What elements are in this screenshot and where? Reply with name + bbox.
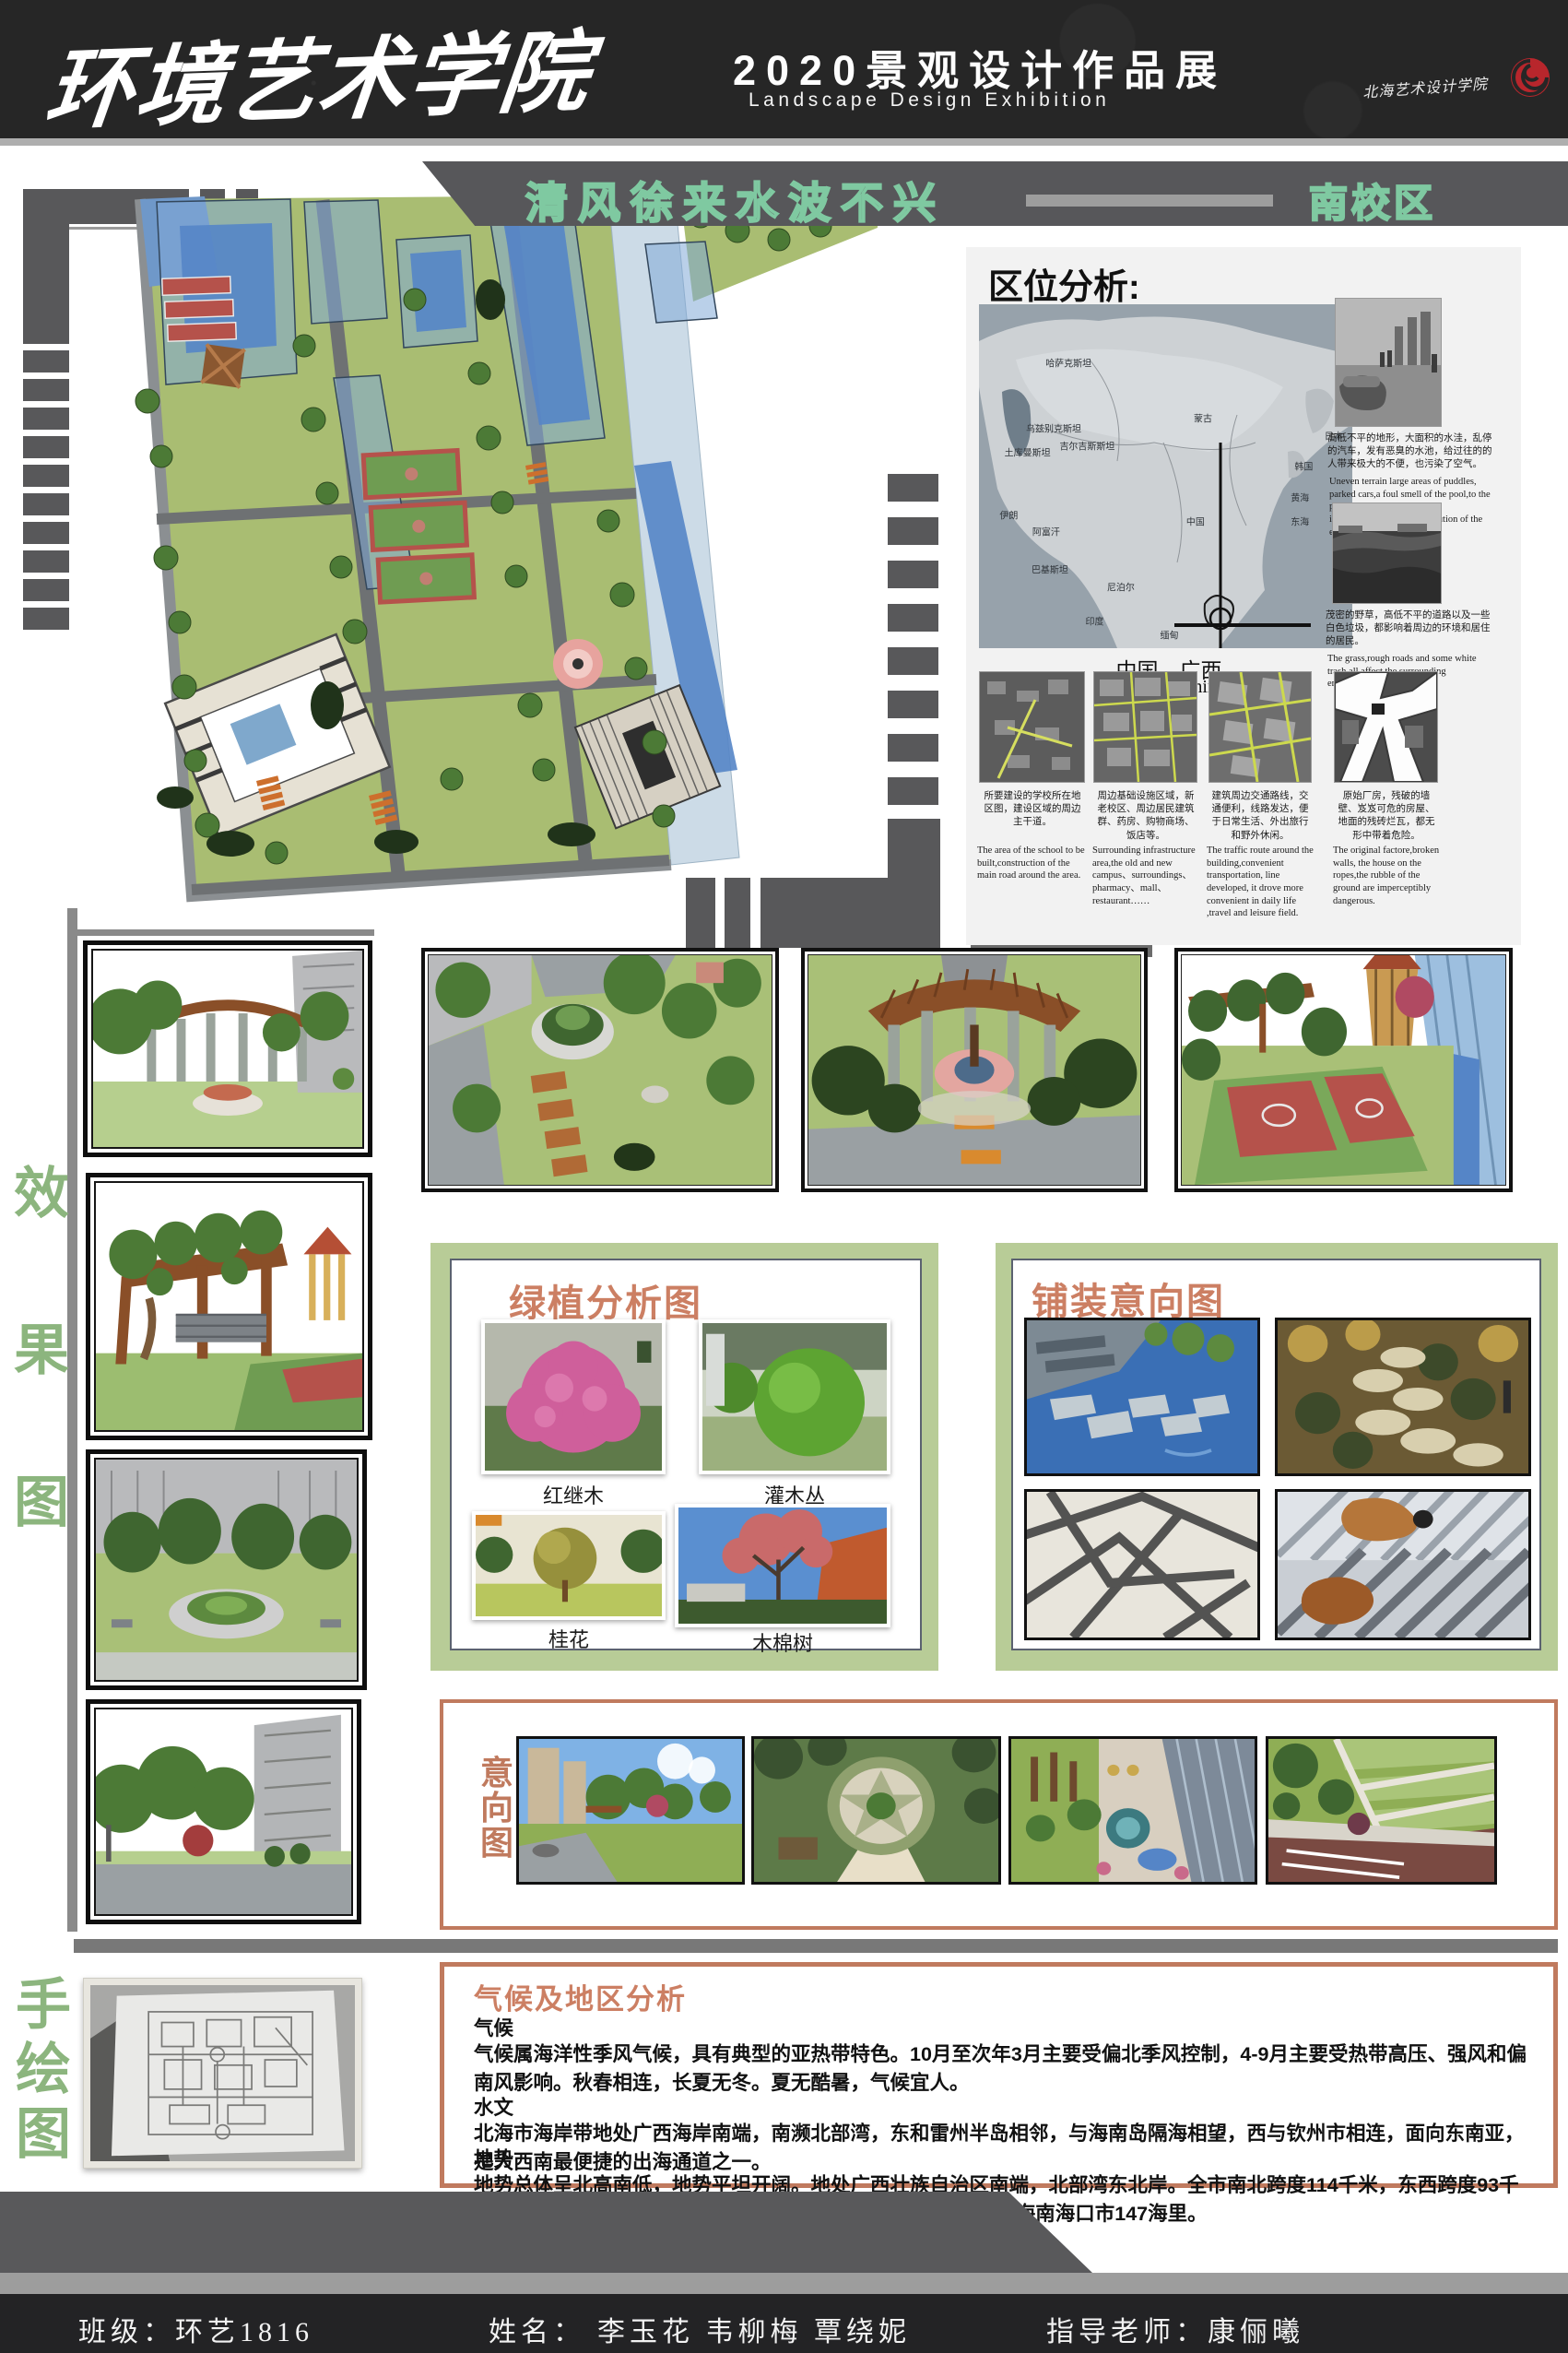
footer-name-label: 姓名： xyxy=(489,2309,585,2349)
intention-label-char: 向 xyxy=(477,1791,517,1825)
aerial-caption-en: The traffic route around the building,co… xyxy=(1207,845,1315,920)
plant-name: 桂花 xyxy=(472,1624,666,1653)
map-label: 巴基斯坦 xyxy=(1032,562,1068,576)
left-top-line xyxy=(77,929,374,936)
effect-label-char: 效 xyxy=(9,1166,74,1222)
aerial-photo-1 xyxy=(979,671,1085,783)
map-label: 中国 xyxy=(1186,514,1205,527)
intention-label-char: 意 xyxy=(477,1756,517,1790)
slogan-banner: 清风徐来水波不兴 南校区 xyxy=(422,161,1568,226)
deco-dash xyxy=(23,379,69,401)
effect-label-char: 果 xyxy=(9,1323,74,1378)
footer-names: 李玉花 韦柳梅 覃绕妮 xyxy=(597,2309,911,2349)
map-label: 韩国 xyxy=(1294,459,1313,473)
map-label: 尼泊尔 xyxy=(1107,579,1135,593)
map-label: 东海 xyxy=(1291,514,1309,527)
render-arc-pergola xyxy=(83,940,372,1157)
aerial-photo-3 xyxy=(1208,671,1312,783)
intention-photo-terraces xyxy=(1266,1736,1497,1885)
climate-paragraph: 水文 xyxy=(474,2094,1534,2122)
deco-dash xyxy=(23,522,69,544)
map-label: 黄海 xyxy=(1291,490,1309,503)
plant-name: 红继木 xyxy=(481,1480,666,1509)
aerial-caption-en: Surrounding infrastructure area,the old … xyxy=(1092,845,1201,907)
deco-dash xyxy=(23,408,69,430)
render-vine-pergola xyxy=(86,1173,372,1440)
map-label: 缅甸 xyxy=(1161,628,1179,642)
asia-map: 哈萨克斯坦 乌兹别克斯坦 土库曼斯坦 吉尔吉斯斯坦 蒙古 伊朗 阿富汗 中国 巴… xyxy=(979,304,1352,648)
deco-dash xyxy=(23,550,69,573)
plant-photo-shrub xyxy=(699,1319,890,1474)
site-photo-street xyxy=(1335,298,1442,427)
exhibition-subtitle: Landscape Design Exhibition xyxy=(749,89,1110,112)
map-label: 乌兹别克斯坦 xyxy=(1026,421,1081,435)
render-round-pergola xyxy=(801,948,1148,1192)
campus-label: 南校区 xyxy=(1309,172,1436,229)
climate-paragraph: 地势 xyxy=(474,2146,1534,2174)
academy-logo-text: 北海艺术设计学院 xyxy=(1362,71,1488,101)
plant-photo-kapok xyxy=(675,1504,890,1627)
intention-panel: 意 向 图 xyxy=(440,1699,1558,1930)
intention-label-char: 图 xyxy=(477,1827,517,1860)
map-label: 土库曼斯坦 xyxy=(1005,445,1051,459)
map-label: 哈萨克斯坦 xyxy=(1045,356,1091,370)
map-label: 蒙古 xyxy=(1194,411,1212,425)
aerial-photo-2 xyxy=(1093,671,1197,783)
left-vertical-bar xyxy=(67,908,77,1932)
banner-dash xyxy=(1026,195,1273,207)
footer-bar: 班级：环艺1816 姓名： 李玉花 韦柳梅 覃绕妮 指导老师：康俪曦 xyxy=(0,2294,1568,2353)
school-calligraphy-title: 环境艺术学院 xyxy=(40,0,597,147)
location-title: 区位分析: xyxy=(988,258,1140,309)
map-label: 印度 xyxy=(1086,614,1104,628)
photo-caption-cn: 茂密的野草，高低不平的道路以及一些白色垃圾，都影响着周边的环境和居住的居民。 xyxy=(1326,609,1497,648)
map-label: 阿富汗 xyxy=(1032,525,1060,538)
paving-photo-striped xyxy=(1275,1489,1531,1640)
deco-dash xyxy=(23,436,69,458)
footer-teacher: 指导老师：康俪曦 xyxy=(1046,2309,1304,2349)
deco-dash xyxy=(23,579,69,601)
exhibition-title: 2020景观设计作品展 xyxy=(733,37,1227,97)
render-courts-tower xyxy=(1174,948,1513,1192)
plants-panel: 绿植分析图 红继木 灌木丛 xyxy=(450,1259,922,1650)
location-analysis-panel: 区位分析: 哈萨克斯坦 xyxy=(966,247,1521,945)
slogan-text: 清风徐来水波不兴 xyxy=(525,170,946,231)
hand-label-char: 手 xyxy=(11,1978,76,2033)
paving-photo-geometric xyxy=(1024,1489,1260,1640)
deco-dash xyxy=(23,493,69,515)
footer-trapezoid xyxy=(0,2192,1092,2273)
master-plan-rendering xyxy=(92,189,963,922)
plant-photo-loropetalum xyxy=(481,1319,666,1474)
academy-logo-swirl-icon xyxy=(1508,55,1552,100)
map-label: 伊朗 xyxy=(999,507,1018,521)
deco-dash xyxy=(23,465,69,487)
render-hedge-garden xyxy=(86,1449,367,1690)
hand-label-char: 绘 xyxy=(11,2042,76,2098)
hand-label-char: 图 xyxy=(11,2107,76,2162)
section-divider-bar xyxy=(74,1939,1558,1953)
aerial-caption-en: The area of the school to be built,const… xyxy=(977,845,1088,882)
deco-corner-vertical xyxy=(23,189,69,344)
exhibition-poster: 环境艺术学院 2020景观设计作品展 Landscape Design Exhi… xyxy=(0,0,1568,2353)
intention-photo-courtyard xyxy=(1008,1736,1257,1885)
map-label: 吉尔吉斯斯坦 xyxy=(1059,438,1114,452)
intention-photo-star-plaza xyxy=(751,1736,1001,1885)
paving-photo-round-steppers xyxy=(1275,1318,1531,1476)
intention-photo-residential xyxy=(516,1736,745,1885)
paving-photo-water-steps xyxy=(1024,1318,1260,1476)
paving-panel: 铺装意向图 xyxy=(1011,1259,1541,1650)
render-garden-path xyxy=(421,948,779,1192)
aerial-caption-cn: 建筑周边交通路线，交通便利，线路发达，便于日常生活、外出旅行和野外休闲。 xyxy=(1209,789,1311,842)
deco-dash xyxy=(23,608,69,630)
hand-drawing-photo xyxy=(83,1978,362,2169)
plant-name: 木棉树 xyxy=(675,1627,890,1657)
climate-paragraph: 气候 xyxy=(474,2015,1534,2043)
deco-dash xyxy=(23,350,69,372)
factory-caption-en: The original factore,broken walls, the h… xyxy=(1333,845,1442,907)
factory-caption-cn: 原始厂房，残破的墙壁、岌岌可危的房屋、地面的残砖烂瓦，都无形中带着危险。 xyxy=(1335,789,1438,842)
effect-label-char: 图 xyxy=(9,1475,74,1531)
plant-photo-osmanthus xyxy=(472,1511,666,1620)
header: 环境艺术学院 2020景观设计作品展 Landscape Design Exhi… xyxy=(0,0,1568,138)
aerial-caption-cn: 周边基础设施区域，新老校区、周边居民建筑群、药房、购物商场、饭店等。 xyxy=(1095,789,1197,842)
aerial-caption-cn: 所要建设的学校所在地区图，建设区域的周边主干道。 xyxy=(981,789,1084,829)
footer-stripe xyxy=(0,2273,1568,2294)
photo-caption-cn: 高低不平的地形，大面积的水洼，乱停的汽车，发有恶臭的水池，给过往的的人带来极大的… xyxy=(1327,432,1495,471)
site-photo-grass xyxy=(1332,503,1442,604)
footer-class: 班级：环艺1816 xyxy=(78,2309,313,2349)
header-divider xyxy=(0,138,1568,146)
climate-panel: 气候及地区分析 气候 气候属海洋性季风气候，具有典型的亚热带特色。10月至次年3… xyxy=(440,1962,1558,2188)
factory-photo xyxy=(1334,671,1438,783)
climate-title: 气候及地区分析 xyxy=(474,1976,687,2017)
climate-paragraph: 气候属海洋性季风气候，具有典型的亚热带特色。10月至次年3月主要受偏北季风控制，… xyxy=(474,2040,1534,2097)
render-street-view xyxy=(86,1699,361,1924)
